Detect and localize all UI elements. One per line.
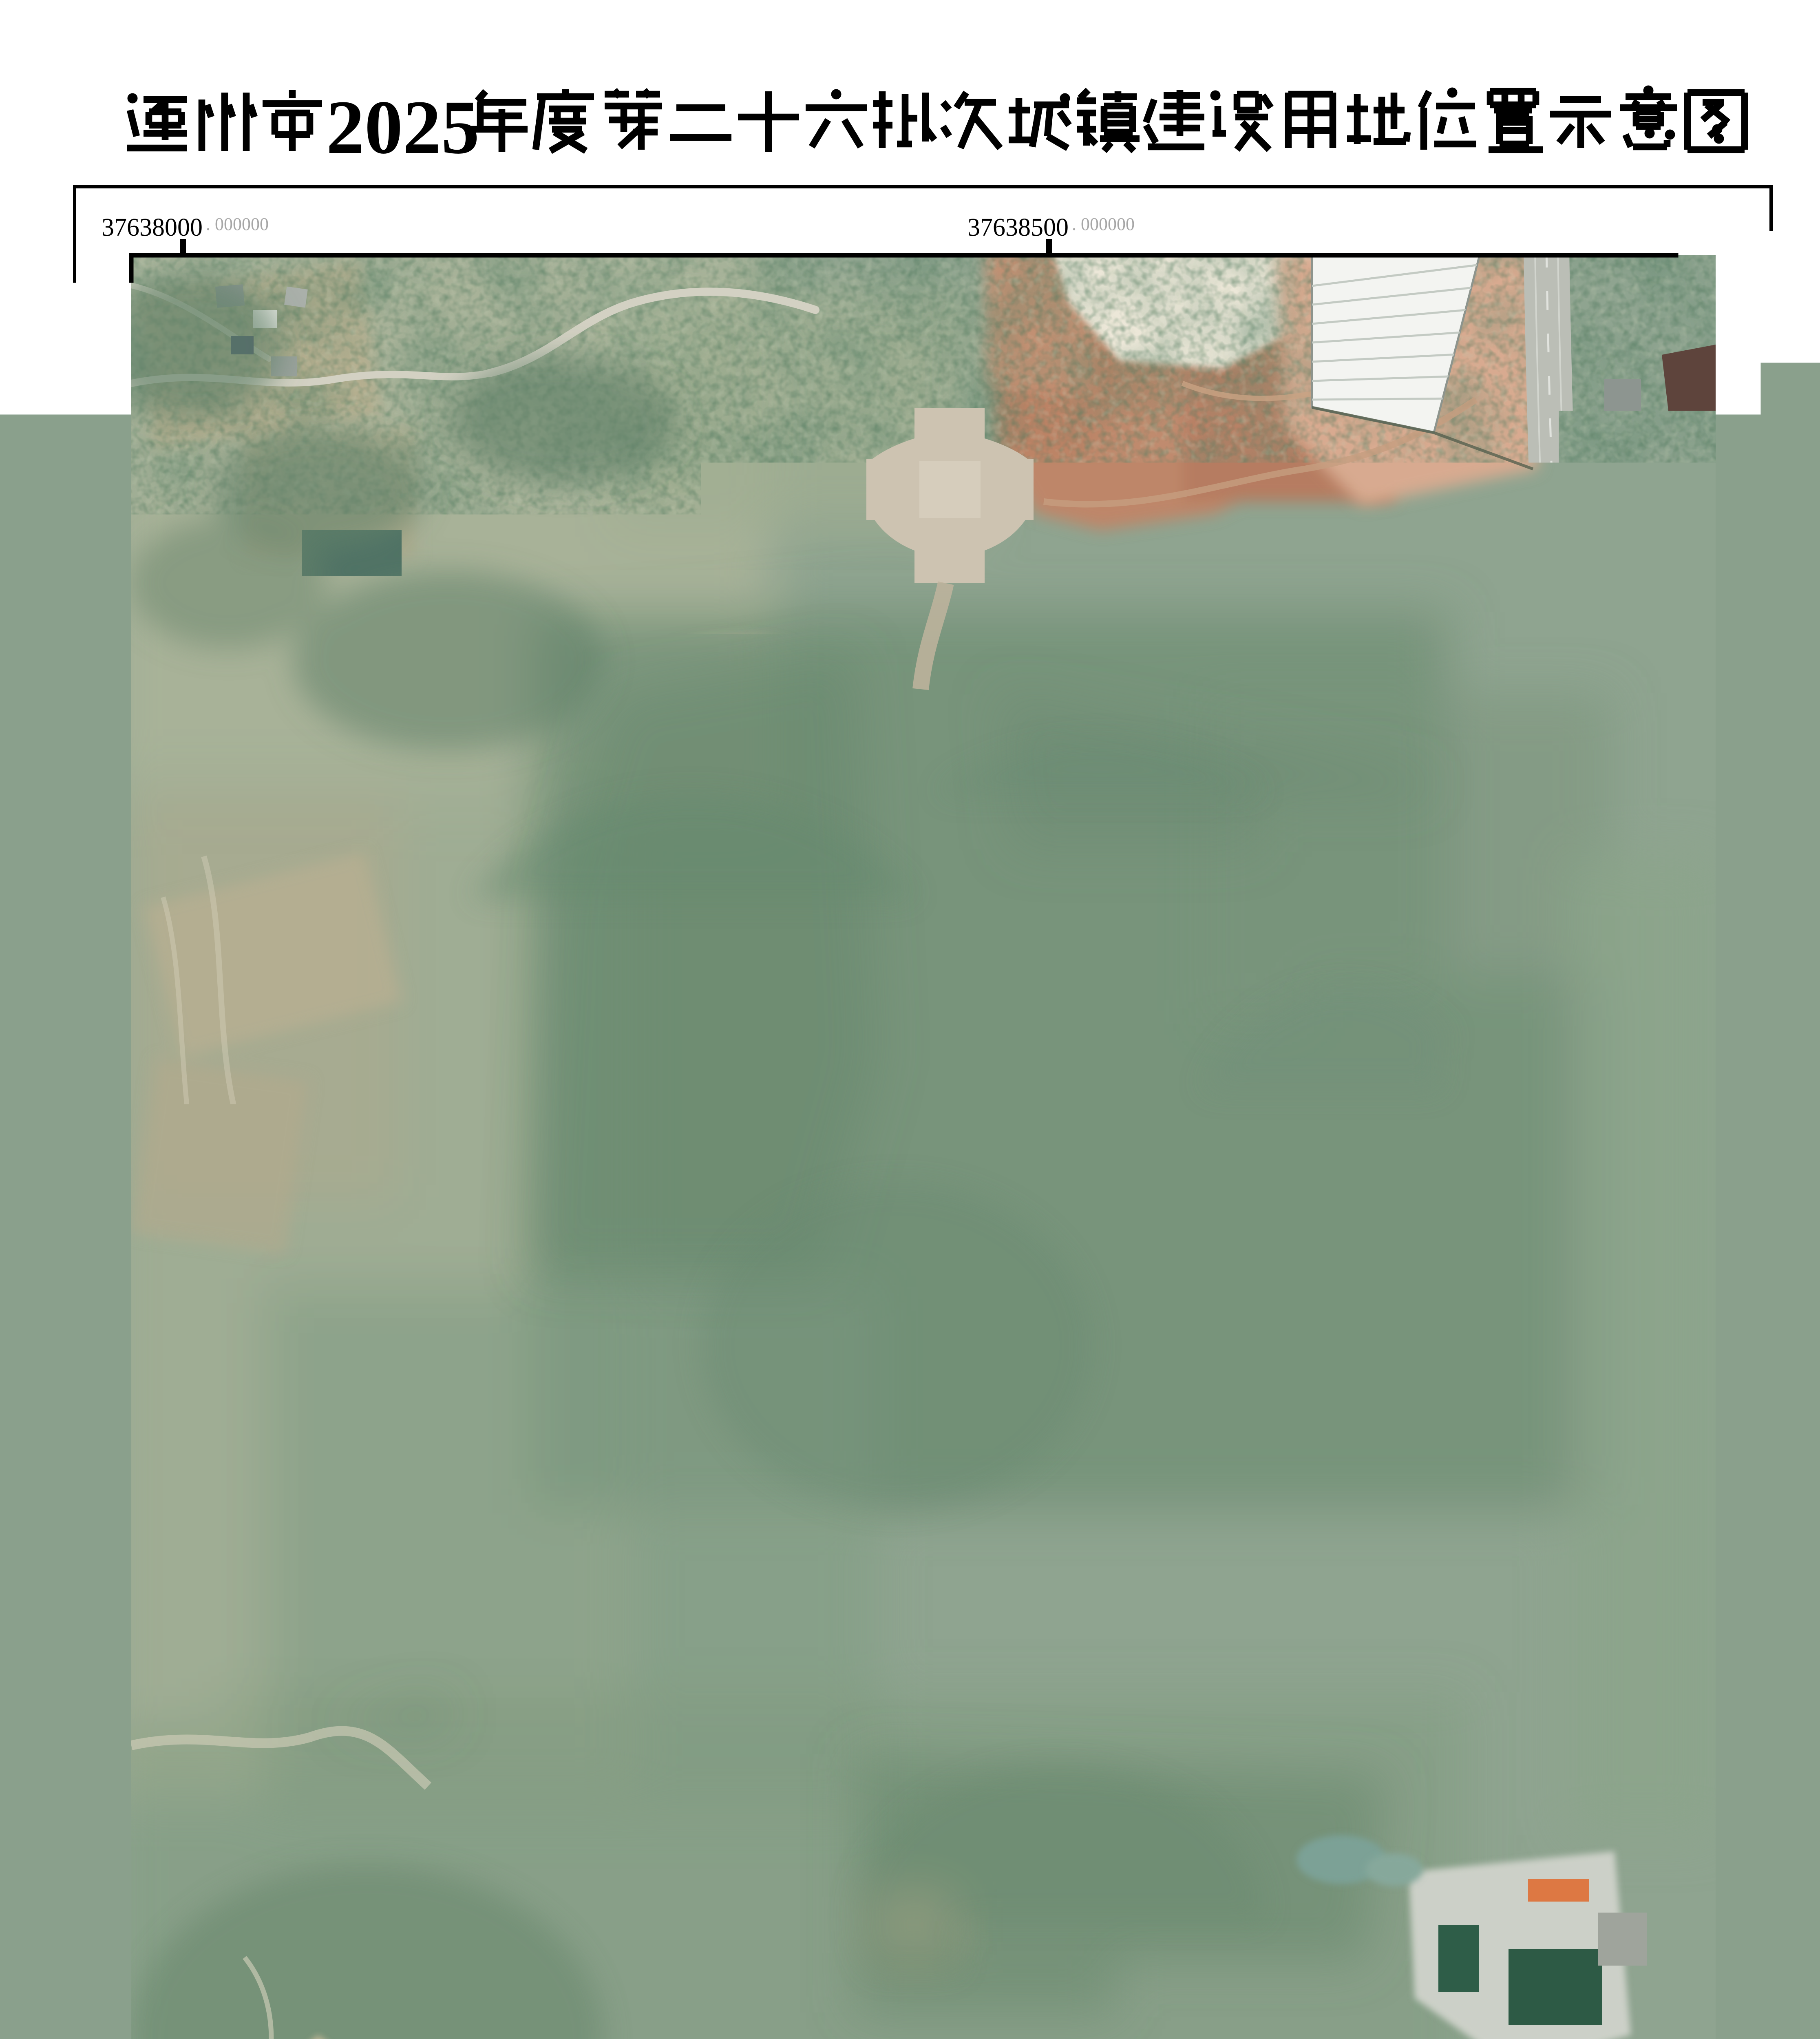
svg-text:. 000000: . 000000 bbox=[1716, 1667, 1736, 1730]
svg-text:2736500: 2736500 bbox=[77, 869, 105, 957]
svg-text:. 000000: . 000000 bbox=[1716, 803, 1736, 865]
svg-text:2025: 2025 bbox=[326, 84, 479, 170]
svg-text:N: N bbox=[1592, 285, 1636, 354]
svg-text:37638500: 37638500 bbox=[967, 214, 1069, 241]
svg-text:. 000000: . 000000 bbox=[206, 214, 269, 234]
svg-text:. 000000: . 000000 bbox=[78, 1667, 98, 1730]
svg-text:. 000000: . 000000 bbox=[1072, 214, 1135, 234]
svg-text:2736000: 2736000 bbox=[1716, 1734, 1743, 1822]
svg-text:2736500: 2736500 bbox=[1716, 869, 1743, 957]
svg-text:. 000000: . 000000 bbox=[78, 803, 98, 865]
svg-text:37638000: 37638000 bbox=[102, 214, 203, 241]
svg-text:2736000: 2736000 bbox=[77, 1734, 105, 1822]
